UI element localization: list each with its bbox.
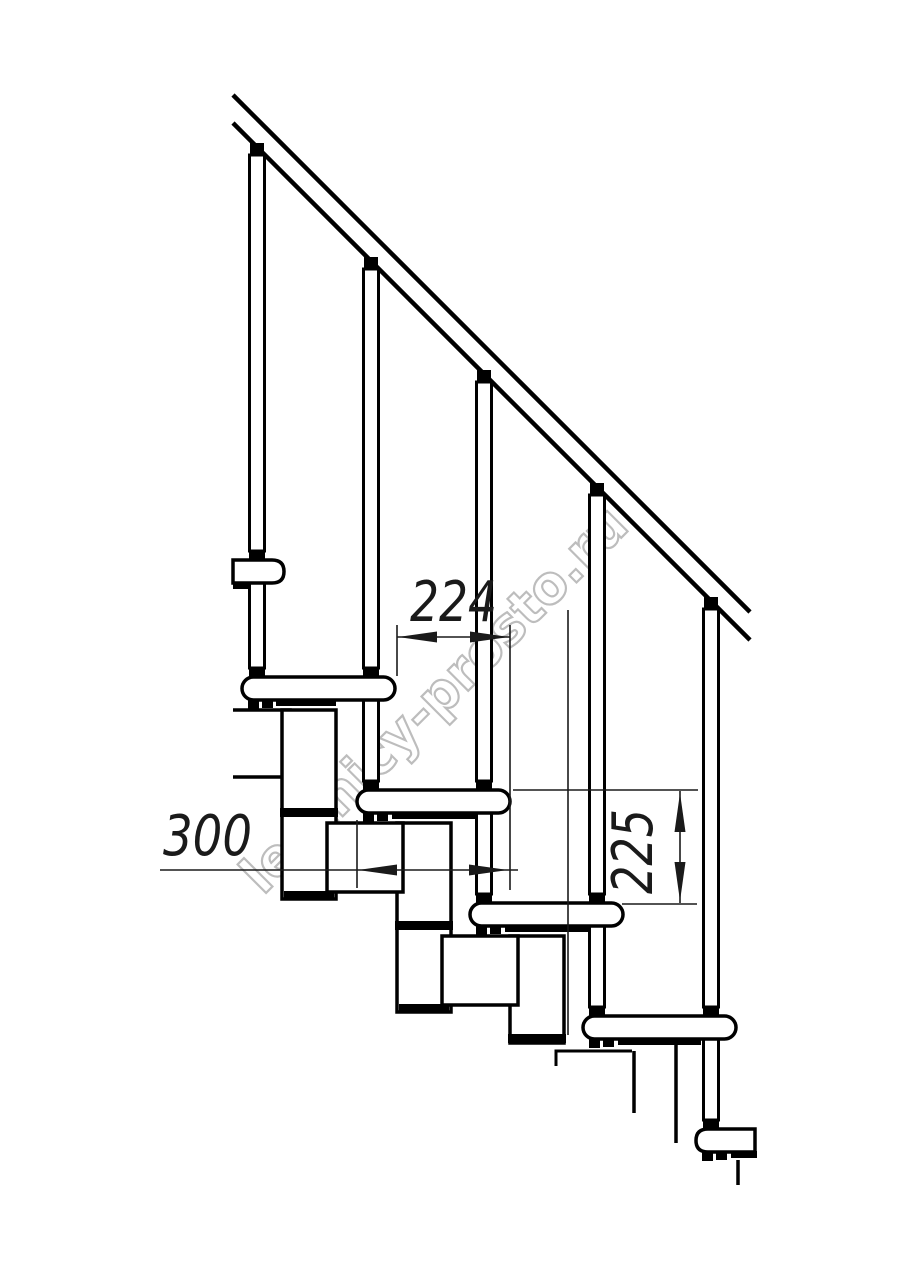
arrowhead-up-icon: [675, 793, 686, 832]
module-flange: [508, 1034, 566, 1043]
support-box-step3: [442, 936, 518, 1005]
tread-underline: [618, 1038, 701, 1045]
tread-underline: [233, 583, 250, 589]
tread-1: [233, 560, 284, 583]
dimension-label-300: 300: [163, 804, 252, 869]
connector-tab: [702, 1151, 713, 1161]
tread-underline: [392, 812, 475, 819]
front-strut-4: [590, 926, 605, 1007]
tread-3: [357, 790, 510, 813]
tread-underline: [731, 1151, 757, 1158]
tread-2: [242, 677, 395, 700]
tread-underline: [276, 699, 336, 706]
connector-tab: [603, 1038, 614, 1047]
arrowhead-down-icon: [675, 862, 686, 901]
tread-6: [696, 1129, 755, 1152]
front-strut-5: [704, 1039, 719, 1120]
front-strut-2: [364, 700, 379, 781]
connector-tab: [589, 1038, 600, 1048]
baluster-2: [364, 269, 379, 668]
baluster-5: [704, 609, 719, 1007]
connector-tab: [262, 699, 273, 708]
connector-tab: [716, 1151, 727, 1160]
front-strut-3: [477, 813, 492, 894]
dimension-label-224: 224: [410, 570, 497, 635]
support-box-step4-partial: [556, 1051, 632, 1066]
baluster-1: [250, 155, 265, 551]
tread-underline: [505, 925, 588, 932]
connector-tab: [363, 812, 374, 822]
connector-tab: [476, 925, 487, 935]
tread-4: [470, 903, 623, 926]
staircase-drawing-page: lestnicy-prosto.ru: [0, 0, 914, 1280]
support-box-step2: [327, 823, 403, 892]
module-flange: [280, 808, 338, 817]
front-strut-1: [250, 583, 265, 668]
module-flange: [395, 921, 453, 930]
connector-tab: [248, 699, 259, 709]
modular-staircase-elevation: lestnicy-prosto.ru: [0, 0, 914, 1280]
connector-tab: [490, 925, 501, 934]
dimension-label-225: 225: [601, 809, 666, 894]
tread-5: [583, 1016, 736, 1039]
connector-tab: [377, 812, 388, 821]
